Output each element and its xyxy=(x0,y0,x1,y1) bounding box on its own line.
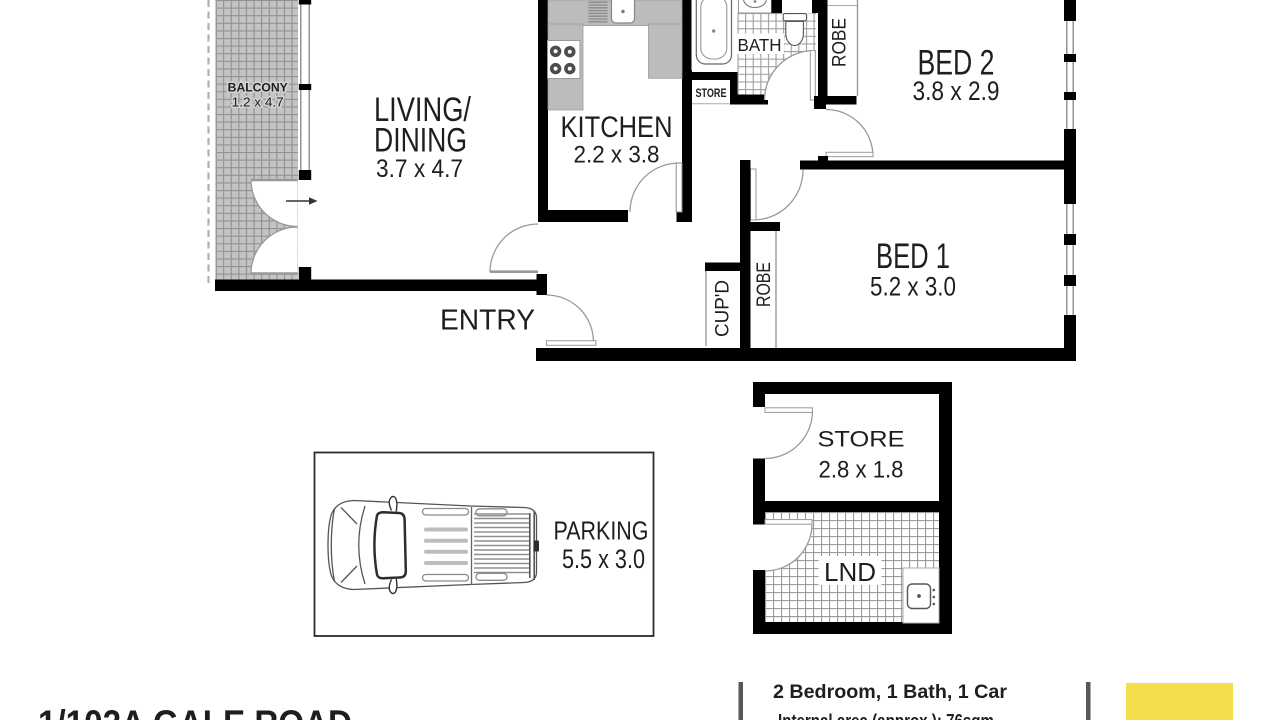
svg-text:ROBE: ROBE xyxy=(754,262,775,307)
svg-text:PARKING: PARKING xyxy=(554,516,649,546)
svg-text:2 Bedroom, 1 Bath, 1 Car: 2 Bedroom, 1 Bath, 1 Car xyxy=(773,681,1007,703)
svg-text:1/102A GALE ROAD: 1/102A GALE ROAD xyxy=(38,703,352,720)
svg-text:ROBE: ROBE xyxy=(830,18,851,67)
svg-text:BATH: BATH xyxy=(738,35,782,55)
svg-text:5.5 x 3.0: 5.5 x 3.0 xyxy=(562,544,645,574)
svg-text:5.2 x 3.0: 5.2 x 3.0 xyxy=(870,272,956,302)
svg-text:DINING: DINING xyxy=(374,122,467,160)
svg-text:2.8 x 1.8: 2.8 x 1.8 xyxy=(819,457,904,484)
svg-text:3.7 x 4.7: 3.7 x 4.7 xyxy=(376,155,463,183)
svg-text:BALCONY: BALCONY xyxy=(228,83,288,95)
svg-text:CUP'D: CUP'D xyxy=(713,280,734,337)
svg-text:KITCHEN: KITCHEN xyxy=(561,111,673,144)
svg-text:2.2 x 3.8: 2.2 x 3.8 xyxy=(574,142,660,169)
svg-text:Internal area (approx.): 76sqm: Internal area (approx.): 76sqm xyxy=(778,711,994,720)
svg-text:STORE: STORE xyxy=(696,86,727,100)
svg-text:STORE: STORE xyxy=(818,427,905,452)
svg-text:LND: LND xyxy=(824,557,876,587)
svg-text:3.8 x 2.9: 3.8 x 2.9 xyxy=(913,76,1000,106)
svg-text:1.2 x 4.7: 1.2 x 4.7 xyxy=(232,95,284,110)
svg-text:BED 1: BED 1 xyxy=(876,237,950,276)
svg-text:ENTRY: ENTRY xyxy=(440,305,535,337)
